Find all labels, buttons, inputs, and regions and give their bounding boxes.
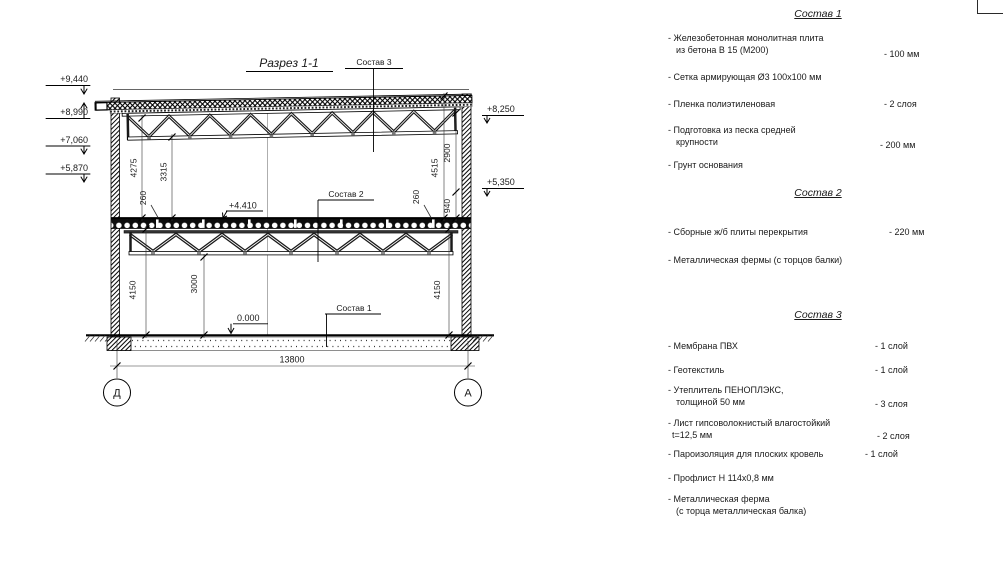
elevation-8250: +8,250 — [487, 104, 515, 114]
spec-item: - Лист гипсоволокнистый влагостойкий t=1… — [668, 418, 883, 441]
dim-3000: 3000 — [189, 274, 199, 293]
level-mark-0000: 0.000 — [228, 313, 268, 334]
spec-item-value: - 1 слой — [875, 341, 908, 352]
callout-label: Состав 1 — [336, 303, 372, 313]
spec-item: - Металлическая фермы (с торцов балки) — [668, 255, 883, 267]
callout-label: Состав 3 — [356, 57, 392, 67]
spec-item-value: - 2 слоя — [877, 431, 910, 442]
spec-item: - Подготовка из песка средней крупности — [668, 125, 883, 148]
dim-4275: 4275 — [129, 158, 139, 177]
section-title: Разрез 1-1 — [259, 56, 318, 70]
axis-bubble-left: Д — [104, 379, 131, 406]
elevation-0000: 0.000 — [237, 313, 260, 323]
spec-item-text: - Металлическая фермы (с торцов балки) — [668, 255, 883, 267]
spec-item-value: - 200 мм — [880, 140, 915, 151]
elevation-marks-right: +8,250 +5,350 — [482, 104, 524, 196]
spec-item: - Металлическая ферма (с торца металличе… — [668, 494, 883, 517]
elevation-5350: +5,350 — [487, 177, 515, 187]
dim-2900: 2900 — [442, 143, 452, 162]
spec-title-sostav2: Состав 2 — [738, 187, 898, 199]
spec-item: - Геотекстиль — [668, 365, 883, 377]
spec-title-sostav3: Состав 3 — [738, 309, 898, 321]
footing-left — [107, 337, 131, 351]
spec-item-text: - Утеплитель ПЕНОПЛЭКС, — [668, 385, 883, 397]
dimension-ticks — [139, 93, 460, 339]
spec-item-value: - 3 слоя — [875, 399, 908, 410]
callout-label: Состав 2 — [328, 189, 364, 199]
spec-item-text: - Пароизоляция для плоских кровель — [668, 449, 883, 461]
dim-260-right: 260 — [411, 190, 421, 204]
spec-item-text: - Геотекстиль — [668, 365, 883, 377]
drawing-title: Разрез 1-1 — [246, 56, 333, 72]
spec-item-text: толщиной 50 мм — [676, 397, 883, 409]
dim-4515: 4515 — [430, 158, 440, 177]
spec-item-value: - 2 слоя — [884, 99, 917, 110]
right-wall — [462, 94, 471, 337]
middle-truss — [124, 231, 458, 255]
spec-item: - Пароизоляция для плоских кровель — [668, 449, 883, 461]
dim-13800: 13800 — [279, 355, 304, 365]
elevation-5870: +5,870 — [60, 163, 88, 173]
spec-item-text: - Сборные ж/б плиты перекрытия — [668, 227, 883, 239]
elevation-4410: +4.410 — [229, 201, 257, 211]
dim-940: 940 — [442, 199, 452, 213]
axis-label-left: Д — [113, 388, 121, 400]
spec-item-text: t=12,5 мм — [672, 430, 883, 442]
spec-item-text: - Железобетонная монолитная плита — [668, 33, 883, 45]
spec-item: - Сборные ж/б плиты перекрытия — [668, 227, 883, 239]
axis-label-right: А — [464, 388, 472, 400]
spec-item: - Сетка армирующая Ø3 100x100 мм — [668, 72, 883, 84]
spec-item-text: - Грунт основания — [668, 160, 883, 172]
floor-slab-middle — [111, 218, 471, 228]
elevation-9440: +9,440 — [60, 74, 88, 84]
spec-item-text: (с торца металлическая балка) — [676, 506, 883, 518]
spec-item: - Мембрана ПВХ — [668, 341, 883, 353]
roof-assembly — [95, 94, 473, 141]
spec-item: - Утеплитель ПЕНОПЛЭКС, толщиной 50 мм — [668, 385, 883, 408]
spec-item-text: - Металлическая ферма — [668, 494, 883, 506]
spec-item-text: крупности — [676, 137, 883, 149]
dimension-lines — [142, 93, 456, 338]
dim-4150-left: 4150 — [128, 280, 138, 299]
spec-item-text: - Пленка полиэтиленовая — [668, 99, 883, 111]
spec-title-sostav1: Состав 1 — [738, 8, 898, 20]
dim-260-left: 260 — [138, 191, 148, 205]
spec-item-text: - Лист гипсоволокнистый влагостойкий — [668, 418, 883, 430]
spec-item-text: - Сетка армирующая Ø3 100x100 мм — [668, 72, 883, 84]
spec-item: - Железобетонная монолитная плита из бет… — [668, 33, 883, 56]
elevation-7060: +7,060 — [60, 135, 88, 145]
spec-item-text: из бетона В 15 (М200) — [676, 45, 883, 57]
level-mark-4410: +4.410 — [223, 201, 264, 219]
spec-item-value: - 100 мм — [884, 49, 919, 60]
axis-bubble-right: А — [455, 379, 482, 406]
dim-260-leaders — [151, 205, 431, 218]
spec-item-text: - Подготовка из песка средней — [668, 125, 883, 137]
ground-slab — [85, 335, 494, 350]
elevation-marks-left: +9,440 +8,990 +7,060 +5,870 — [46, 74, 90, 182]
dim-4150-right: 4150 — [432, 280, 442, 299]
spec-item-value: - 1 слой — [875, 365, 908, 376]
dim-3315: 3315 — [159, 162, 169, 181]
roof-edge-block — [96, 103, 107, 110]
spec-item: - Грунт основания — [668, 160, 883, 172]
spec-item-text: - Профлист Н 114х0,8 мм — [668, 473, 883, 485]
spec-item: - Профлист Н 114х0,8 мм — [668, 473, 883, 485]
spec-item-text: - Мембрана ПВХ — [668, 341, 883, 353]
spec-item-value: - 1 слой — [865, 449, 898, 460]
spec-item: - Пленка полиэтиленовая — [668, 99, 883, 111]
spec-item-value: - 220 мм — [889, 227, 924, 238]
